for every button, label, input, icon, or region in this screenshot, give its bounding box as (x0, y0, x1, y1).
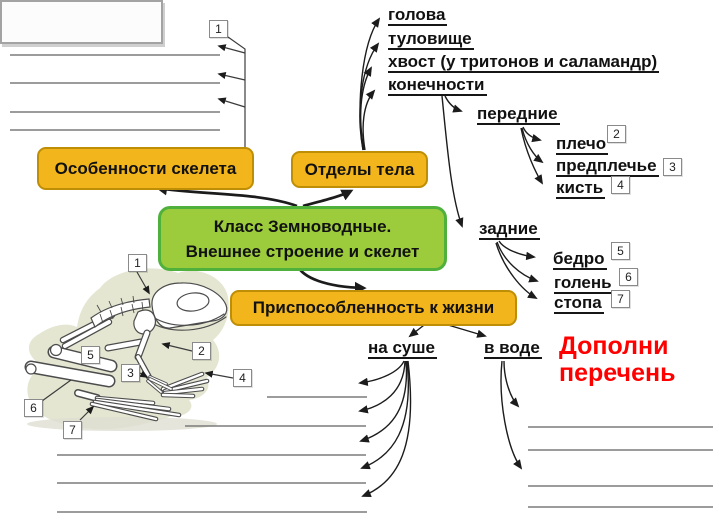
callout-box-2: 2 (607, 125, 626, 143)
center-title-line2: Внешнее строение и скелет (186, 242, 420, 261)
node-label: Приспособленность к жизни (253, 298, 494, 318)
list-item-limbs: конечности (388, 77, 487, 96)
connector-center-to-body-parts (303, 191, 351, 206)
callout-box-4: 4 (611, 176, 630, 194)
callout-box-7: 7 (611, 290, 630, 308)
node-label: Особенности скелета (55, 159, 237, 179)
connectors-limbs (442, 96, 542, 298)
node-adaptation: Приспособленность к жизни (230, 290, 517, 326)
list-item-shin: голень (554, 275, 614, 294)
note-line1: Дополни (559, 333, 675, 360)
node-label: Класс Земноводные. Внешнее строение и ск… (186, 214, 420, 264)
list-item-front-limbs: передние (477, 106, 560, 125)
connectors-top-callout (219, 37, 245, 147)
list-item-foot: стопа (554, 295, 604, 314)
node-body-parts: Отделы тела (291, 151, 428, 188)
list-item-on-land: на суше (368, 340, 437, 359)
callout-box-1-top: 1 (209, 20, 228, 38)
connector-center-to-skeleton-features (158, 188, 297, 206)
center-title-line1: Класс Земноводные. (214, 217, 392, 236)
empty-note-box (0, 0, 163, 44)
frog-shoulder-bone (134, 310, 156, 334)
node-center-topic: Класс Земноводные. Внешнее строение и ск… (158, 206, 447, 271)
list-item-hand: кисть (556, 180, 605, 199)
callout-number: 1 (215, 22, 222, 36)
list-item-tail: хвост (у тритонов и саламандр) (388, 54, 659, 73)
worksheet-page: 1 Особенности скелета Отделы тела Класс … (0, 0, 727, 526)
list-item-in-water: в воде (484, 340, 542, 359)
frog-callout-box-4: 4 (233, 369, 252, 387)
callout-box-6: 6 (619, 268, 638, 286)
frog-callout-box-5: 5 (81, 346, 100, 364)
frog-callout-box-7: 7 (63, 421, 82, 439)
frog-callout-box-2: 2 (192, 342, 211, 360)
list-item-shoulder: плечо (556, 136, 608, 155)
list-item-trunk: туловище (388, 31, 474, 50)
writing-lines-in-water (528, 427, 713, 507)
node-skeleton-features: Особенности скелета (37, 147, 254, 190)
callout-box-5: 5 (611, 242, 630, 260)
writing-lines-top-left (10, 55, 220, 130)
list-item-hind-limbs: задние (479, 221, 540, 240)
frog-callout-box-6: 6 (24, 399, 43, 417)
frog-callout-box-1: 1 (128, 254, 147, 272)
list-item-head: голова (388, 7, 447, 26)
frog-callout-box-3: 3 (121, 364, 140, 382)
frog-shadow (27, 417, 217, 431)
callout-box-3: 3 (663, 158, 682, 176)
instruction-note: Дополни перечень (559, 333, 675, 387)
list-item-forearm: предплечье (556, 158, 659, 177)
list-item-thigh: бедро (553, 251, 607, 270)
node-label: Отделы тела (305, 160, 415, 180)
connectors-body-parts-fan (360, 19, 379, 150)
note-line2: перечень (559, 360, 675, 387)
